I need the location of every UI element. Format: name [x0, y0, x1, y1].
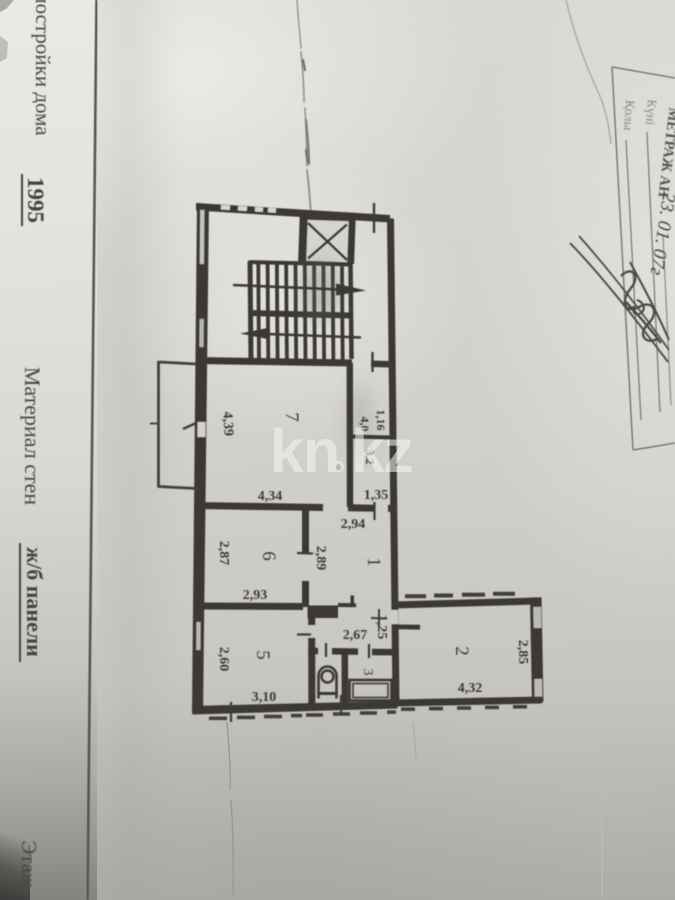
svg-text:4,32: 4,32 [458, 681, 483, 696]
svg-text:ж/б панели: ж/б панели [22, 547, 47, 657]
svg-text:2,85: 2,85 [515, 640, 530, 665]
svg-text:4,39: 4,39 [219, 411, 235, 436]
svg-text:Қолы: Қолы [621, 100, 638, 131]
svg-text:3,10: 3,10 [252, 690, 277, 705]
svg-text:2: 2 [451, 646, 472, 656]
svg-text:1,35: 1,35 [364, 488, 389, 503]
svg-text:1995: 1995 [23, 177, 48, 223]
svg-text:2,60: 2,60 [216, 647, 231, 672]
svg-text:1,25: 1,25 [374, 615, 389, 640]
svg-text:kz: kz [351, 417, 412, 485]
svg-text:5: 5 [252, 650, 273, 660]
svg-text:1: 1 [363, 557, 384, 567]
svg-text:3: 3 [360, 669, 375, 676]
svg-text:4,34: 4,34 [258, 489, 283, 504]
svg-text:2,93: 2,93 [243, 588, 268, 603]
svg-text:2,89: 2,89 [313, 546, 328, 571]
svg-text:6: 6 [258, 551, 279, 561]
svg-text:2,94: 2,94 [341, 517, 366, 532]
svg-text:2,87: 2,87 [216, 541, 231, 566]
svg-text:Материал стен: Материал стен [20, 367, 45, 505]
svg-text:2,67: 2,67 [343, 628, 368, 643]
svg-text:постройки дома: постройки дома [31, 0, 55, 136]
svg-text:Этаж: Этаж [17, 840, 41, 888]
svg-text:kn: kn [270, 417, 339, 485]
svg-text:Күні: Күні [643, 99, 660, 126]
